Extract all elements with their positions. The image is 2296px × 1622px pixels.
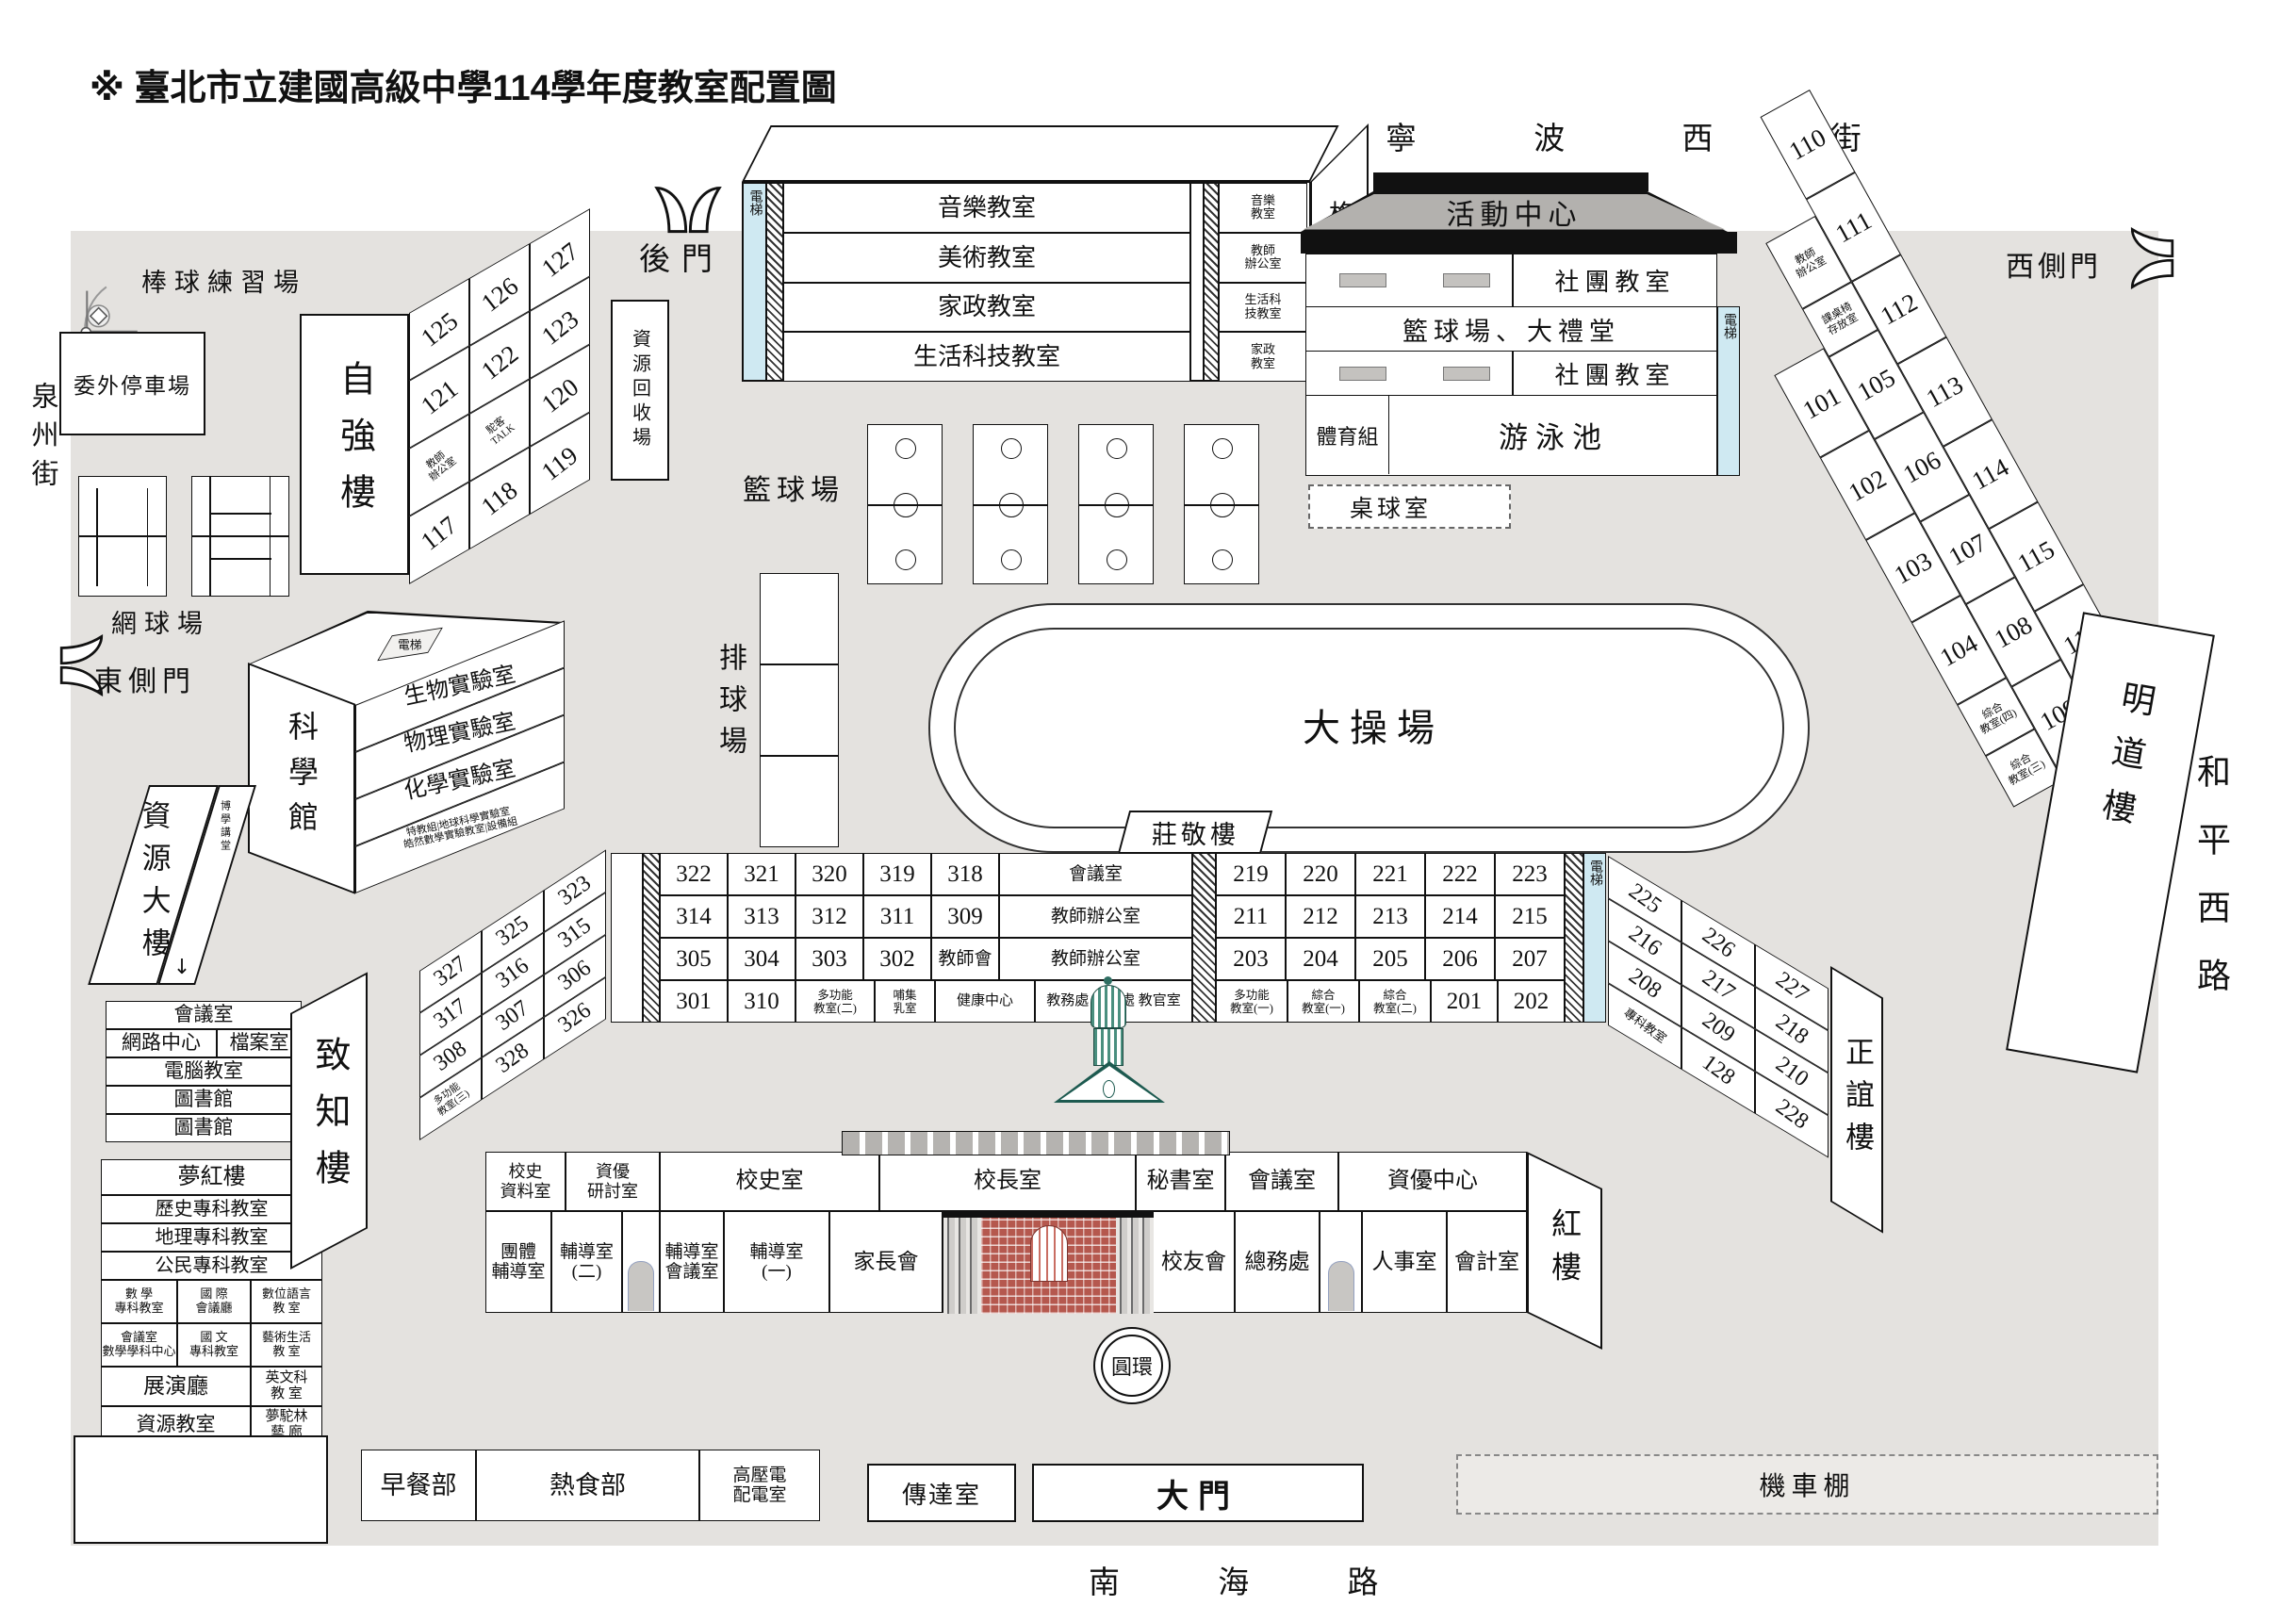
- baseball-field-label: 棒球練習場: [141, 262, 306, 299]
- parking-label: 委外停車場: [74, 368, 191, 400]
- room-cell: 英文科 教 室: [251, 1367, 322, 1406]
- room-cell: 322: [660, 853, 728, 895]
- room-cell: 203: [1216, 938, 1286, 980]
- east-gate-label: 東側門: [94, 658, 196, 699]
- zhuangjing-plate: 莊敬樓: [1118, 811, 1272, 854]
- room-cell: 教師辦公室: [999, 938, 1192, 980]
- honglou-bottom-right: 校友會總務處: [1153, 1211, 1320, 1313]
- room-cell: 多功能 教室(二): [795, 980, 875, 1023]
- room-cell: 教師 辦公室: [1219, 233, 1307, 283]
- room-cell: 309: [931, 895, 999, 938]
- zhengyi-label: 正誼樓: [1836, 1036, 1878, 1163]
- room-cell: 教師會: [931, 938, 999, 980]
- tennis-court: [191, 476, 289, 597]
- west-gate-label: 西側門: [2006, 243, 2102, 285]
- elevator-label: 電梯: [1719, 313, 1738, 339]
- room-cell: 數 學 專科教室: [101, 1280, 177, 1323]
- room-cell: 藝術生活 教 室: [251, 1323, 322, 1367]
- room-cell: 多功能 教室(一): [1216, 980, 1287, 1023]
- room-cell: 312: [795, 895, 863, 938]
- central-stairs-icon: [643, 853, 660, 1023]
- gewu-side-rooms: 音樂 教室教師 辦公室生活科 技教室家政 教室: [1219, 183, 1307, 382]
- room-cell: 221: [1355, 853, 1425, 895]
- volleyball-court: [760, 664, 839, 756]
- room-cell: 綜合 教室(一): [1287, 980, 1359, 1023]
- parking-lot: 委外停車場: [59, 332, 205, 435]
- room-cell: 319: [863, 853, 931, 895]
- room-cell: 生活科技教室: [783, 332, 1190, 382]
- room-cell: 輔導室 (一): [724, 1211, 829, 1313]
- zhengyi-face: 正誼樓: [1830, 966, 1883, 1234]
- room-cell: 211: [1216, 895, 1286, 938]
- room-cell: 音樂教室: [783, 183, 1190, 233]
- basketball-court: [867, 424, 943, 584]
- page-title: ※ 臺北市立建國高級中學114學年度教室配置圖: [90, 58, 837, 110]
- honglou-bottom-mid: 輔導室 會議室輔導室 (一)家長會: [660, 1211, 943, 1313]
- room-cell: 校史 資料室: [485, 1152, 566, 1211]
- elevator-label: 電梯: [746, 189, 764, 216]
- room-cell: 輔導室 會議室: [660, 1211, 724, 1313]
- room-cell: 資優中心: [1338, 1152, 1527, 1211]
- window: [1339, 273, 1386, 287]
- room-cell: 音樂 教室: [1219, 183, 1307, 233]
- elevator-label: 電梯: [398, 635, 421, 652]
- building-gewu: 電梯 音樂教室美術教室家政教室生活科技教室 音樂 教室教師 辦公室生活科 技教室…: [742, 182, 1310, 382]
- room-cell: 網路中心: [106, 1029, 217, 1057]
- honglou-door-cell: [622, 1211, 660, 1313]
- building-ziqiang-face: 自強樓: [300, 314, 409, 575]
- room-cell: 223: [1495, 853, 1565, 895]
- room-cell: 校友會: [1153, 1211, 1235, 1313]
- mingdao-label: 明道樓: [2048, 677, 2163, 1064]
- room-cell: 201: [1431, 980, 1498, 1023]
- room-cell: 秘書室: [1136, 1152, 1225, 1211]
- room-cell: 207: [1495, 938, 1565, 980]
- science-label: 科學館: [280, 711, 323, 846]
- room-cell: 總務處: [1235, 1211, 1320, 1313]
- menghong-rows: 歷史專科教室地理專科教室公民專科教室: [101, 1195, 322, 1280]
- bike-shed: 機車棚: [1456, 1454, 2158, 1515]
- red-gate-facade: [943, 1211, 1153, 1313]
- gewu-main-rooms: 音樂教室美術教室家政教室生活科技教室: [783, 183, 1190, 382]
- gewu-elevator: 電梯: [743, 183, 766, 381]
- volleyball-court: [760, 573, 839, 664]
- west-gate-icon: [2129, 225, 2174, 291]
- tennis-court: [78, 476, 167, 597]
- central-stairs-icon: [1192, 853, 1216, 1023]
- street-west: 泉州街: [23, 382, 62, 498]
- baseball-field-icon: [77, 271, 145, 339]
- room-cell: 電腦教室: [106, 1057, 302, 1086]
- honglou-door-cell: [1320, 1211, 1362, 1313]
- central-elevator: 電梯: [1583, 853, 1606, 1023]
- pe-office-label: 體育組: [1316, 420, 1378, 451]
- arch-door-icon: [1328, 1261, 1354, 1311]
- room-cell: 檔案室: [217, 1029, 302, 1057]
- campus-map: ※ 臺北市立建國高級中學114學年度教室配置圖 寧 波 西 街 南 海 路 泉州…: [0, 0, 2296, 1622]
- unlabeled-building: [74, 1435, 328, 1544]
- menghong-row: 夢紅樓: [101, 1159, 322, 1195]
- gewu-stairs-icon: [766, 183, 783, 381]
- room-cell: 圖書館: [106, 1114, 302, 1142]
- central-left-grid: 322321320319318會議室314313312311309教師辦公室30…: [660, 853, 1192, 980]
- central-blank-cell: [611, 853, 643, 1023]
- street-east: 和平西路: [2187, 754, 2236, 1025]
- zhuangjing-label: 莊敬樓: [1152, 814, 1239, 851]
- window: [1339, 367, 1386, 381]
- room-cell: 家政 教室: [1219, 332, 1307, 382]
- elevator-label: 電梯: [1585, 860, 1604, 886]
- room-cell: 歷史專科教室: [101, 1195, 322, 1223]
- central-stairs-icon: [1565, 853, 1583, 1023]
- reception-office: 傳達室: [867, 1464, 1016, 1522]
- tower-dome-icon: [1091, 985, 1126, 1028]
- menghong-grid: 數 學 專科教室國 際 會議廳數位語言 教 室會議室 數學學科中心國 文 專科教…: [101, 1280, 322, 1367]
- room-cell: 校史室: [660, 1152, 879, 1211]
- room-cell: 214: [1425, 895, 1495, 938]
- room-cell: 會議室: [106, 1001, 302, 1029]
- activity-elevator: 電梯: [1717, 306, 1740, 476]
- room-cell: 320: [795, 853, 863, 895]
- room-cell: 數位語言 教 室: [251, 1280, 322, 1323]
- window: [1443, 273, 1490, 287]
- roundabout-label: 圓環: [1111, 1351, 1153, 1381]
- room-cell: 展演廳: [101, 1367, 251, 1406]
- room-cell: 生活科 技教室: [1219, 283, 1307, 333]
- room-cell: 219: [1216, 853, 1286, 895]
- room-cell: 健康中心: [935, 980, 1035, 1023]
- honglou-bottom-far: 人事室會計室: [1362, 1211, 1527, 1313]
- back-gate-label: 後門: [639, 234, 724, 279]
- central-right-row4: 多功能 教室(一)綜合 教室(一)綜合 教室(二)201202: [1216, 980, 1565, 1023]
- room-cell: 國 際 會議廳: [177, 1280, 251, 1323]
- room-cell: 家政教室: [783, 283, 1190, 333]
- room-cell: 205: [1355, 938, 1425, 980]
- table-tennis-label: 桌球室: [1350, 490, 1432, 524]
- window: [1443, 367, 1490, 381]
- reception-label: 傳達室: [902, 1476, 981, 1511]
- gym-hall-label: 籃球場、大禮堂: [1402, 311, 1620, 348]
- street-south: 南 海 路: [1089, 1557, 1424, 1602]
- recycle-label: 資源回收場: [627, 329, 654, 451]
- room-cell: 206: [1425, 938, 1495, 980]
- basketball-court: [973, 424, 1048, 584]
- back-gate-icon: [652, 185, 724, 234]
- ziqiang-label: 自強樓: [329, 360, 381, 530]
- tower-column: [1093, 1028, 1123, 1066]
- room-cell: 會議室 數學學科中心: [101, 1323, 177, 1367]
- gate-arch-window: [1030, 1225, 1068, 1282]
- room-cell: 314: [660, 895, 728, 938]
- activity-roof: 活動中心: [1301, 191, 1728, 232]
- room-cell: 輔導室 (二): [551, 1211, 622, 1313]
- basketball-court: [1078, 424, 1154, 584]
- room-cell: 311: [863, 895, 931, 938]
- central-right-grid: 2192202212222232112122132142152032042052…: [1216, 853, 1565, 980]
- room-cell: 302: [863, 938, 931, 980]
- room-cell: 公民專科教室: [101, 1252, 322, 1280]
- recycle-yard: 資源回收場: [611, 300, 669, 481]
- honglou-label: 紅樓: [1543, 1207, 1586, 1294]
- room-cell: 國 文 專科教室: [177, 1323, 251, 1367]
- table-tennis-room: 桌球室: [1308, 484, 1511, 529]
- room-cell: 310: [728, 980, 795, 1023]
- zhizhi-face: 致知樓: [290, 972, 368, 1270]
- room-cell: 家長會: [829, 1211, 943, 1313]
- bike-shed-label: 機車棚: [1759, 1466, 1855, 1503]
- building-activity-center: 社團教室 籃球場、大禮堂 社團教室 體育組 游泳池: [1305, 254, 1717, 476]
- basketball-court: [1184, 424, 1259, 584]
- room-cell: 303: [795, 938, 863, 980]
- room-cell: 校長室: [879, 1152, 1136, 1211]
- room-cell: 204: [1286, 938, 1355, 980]
- room-cell: 美術教室: [783, 233, 1190, 283]
- room-cell: 215: [1495, 895, 1565, 938]
- room-cell: 220: [1286, 853, 1355, 895]
- track-label: 大操場: [1303, 697, 1444, 752]
- activity-roof-ridge: [1373, 172, 1648, 191]
- boxue-hall-label: 博學講堂: [218, 800, 233, 853]
- room-cell: 會計室: [1447, 1211, 1527, 1313]
- facade-roof-band: [842, 1131, 1230, 1155]
- pool-label: 游泳池: [1499, 414, 1609, 456]
- room-cell: 會議室: [1225, 1152, 1338, 1211]
- room-cell: 301: [660, 980, 728, 1023]
- room-cell: 夢紅樓: [101, 1159, 322, 1195]
- honglou-bottom-left: 團體 輔導室輔導室 (二): [485, 1211, 622, 1313]
- tennis-label: 網球場: [111, 603, 210, 640]
- arch-door-icon: [628, 1261, 654, 1311]
- club-room-label: 社團教室: [1554, 263, 1675, 298]
- room-cell: 熱食部: [476, 1450, 699, 1521]
- room-cell: 321: [728, 853, 795, 895]
- main-gate: 大門: [1032, 1464, 1364, 1522]
- room-cell: 綜合 教室(二): [1359, 980, 1431, 1023]
- room-cell: 304: [728, 938, 795, 980]
- room-cell: 313: [728, 895, 795, 938]
- room-cell: 會議室: [999, 853, 1192, 895]
- room-cell: 早餐部: [361, 1450, 476, 1521]
- room-cell: 222: [1425, 853, 1495, 895]
- room-cell: 202: [1498, 980, 1565, 1023]
- volleyball-label: 排球場: [709, 643, 750, 767]
- room-cell: 圖書館: [106, 1086, 302, 1114]
- gewu-roof: [742, 125, 1339, 182]
- resource-stack: 會議室網路中心檔案室電腦教室圖書館圖書館: [106, 1001, 302, 1142]
- room-cell: 212: [1286, 895, 1355, 938]
- volleyball-court: [760, 756, 839, 847]
- basketball-label: 籃球場: [743, 467, 845, 508]
- activity-roof-eave: [1301, 232, 1737, 254]
- room-cell: 318: [931, 853, 999, 895]
- arrow-down-icon: ↓: [173, 956, 190, 979]
- science-face: 科學館: [248, 663, 355, 894]
- zhizhi-label: 致知樓: [303, 1036, 355, 1205]
- room-cell: 高壓電 配電室: [699, 1450, 820, 1521]
- activity-center-label: 活動中心: [1447, 191, 1583, 233]
- room-cell: 團體 輔導室: [485, 1211, 551, 1313]
- room-cell: 教師辦公室: [999, 895, 1192, 938]
- roundabout: 圓環: [1093, 1327, 1171, 1404]
- menghong-row7: 展演廳英文科 教 室: [101, 1367, 322, 1406]
- tower-roof-triangle: [1054, 1061, 1165, 1103]
- main-gate-label: 大門: [1156, 1470, 1239, 1516]
- club-room-label: 社團教室: [1554, 356, 1675, 391]
- services-block: 早餐部熱食部高壓電 配電室: [361, 1450, 820, 1521]
- room-cell: 資優 研討室: [566, 1152, 660, 1211]
- room-cell: 地理專科教室: [101, 1223, 322, 1252]
- gewu-stairs-icon: [1204, 183, 1219, 381]
- room-cell: 305: [660, 938, 728, 980]
- tower-finial: [1104, 976, 1112, 985]
- honglou-top-row: 校史 資料室資優 研討室校史室校長室秘書室會議室資優中心: [485, 1152, 1527, 1211]
- room-cell: 哺集 乳室: [875, 980, 935, 1023]
- resource-tower-label: 資源大樓: [132, 800, 174, 970]
- room-cell: 213: [1355, 895, 1425, 938]
- room-cell: 人事室: [1362, 1211, 1447, 1313]
